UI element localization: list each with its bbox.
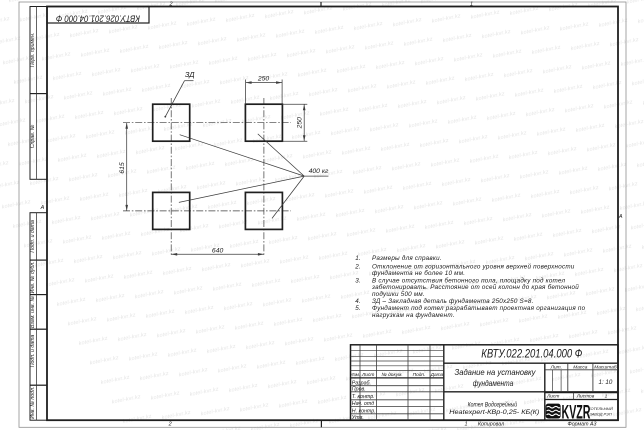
svg-text:1: 10: 1: 10 (599, 379, 613, 386)
svg-text:ЗАВОД РЭП: ЗАВОД РЭП (589, 412, 612, 417)
svg-text:Копировал: Копировал (478, 421, 504, 427)
svg-text:ЗД – Закладная деталь фундамен: ЗД – Закладная деталь фундамента 250х250… (372, 297, 534, 305)
svg-text:Пров.: Пров. (352, 387, 366, 393)
svg-text:Фундамент под котел разрабатыв: Фундамент под котел разрабатывает проект… (372, 304, 586, 312)
svg-text:забетонировать. Расстояние от: забетонировать. Расстояние от осей колон… (371, 283, 579, 291)
svg-text:А: А (40, 205, 45, 211)
svg-text:Формат А3: Формат А3 (568, 421, 597, 427)
svg-text:Утв.: Утв. (352, 415, 364, 421)
svg-text:КВТУ.022.201.04.000 Ф: КВТУ.022.201.04.000 Ф (481, 349, 582, 361)
svg-text:Нач. отд: Нач. отд (352, 401, 374, 407)
svg-text:1: 1 (464, 422, 467, 428)
svg-text:Инв. № подл.: Инв. № подл. (30, 387, 36, 419)
svg-text:Подп. и дата: Подп. и дата (30, 335, 36, 368)
svg-text:3.: 3. (355, 277, 361, 284)
svg-text:В случае отсутствия бетонного: В случае отсутствия бетонного пола, площ… (372, 276, 566, 284)
svg-text:Взам. инв. №: Взам. инв. № (30, 295, 36, 327)
svg-text:Размеры для справки.: Размеры для справки. (372, 254, 442, 262)
svg-text:А: А (618, 214, 623, 220)
svg-text:КОТЕЛЬНЫЙ: КОТЕЛЬНЫЙ (588, 406, 613, 411)
svg-text:Дата: Дата (430, 372, 444, 378)
svg-text:Heatexpert-КВр-0,25- КБ(К): Heatexpert-КВр-0,25- КБ(К) (449, 410, 539, 416)
svg-text:Масштаб: Масштаб (594, 365, 617, 371)
svg-text:250: 250 (297, 117, 304, 130)
svg-text:KVZR: KVZR (562, 402, 591, 423)
svg-text:615: 615 (119, 162, 126, 174)
svg-text:Лист: Лист (361, 372, 374, 378)
svg-text:подушки 500 мм.: подушки 500 мм. (372, 290, 425, 298)
svg-text:Задание на установку: Задание на установку (455, 367, 537, 377)
svg-text:Подп. и дата: Подп. и дата (30, 220, 36, 253)
svg-text:фундамента не более 10 мм.: фундамента не более 10 мм. (372, 269, 465, 277)
svg-text:4.: 4. (355, 298, 361, 305)
svg-text:Т. контр.: Т. контр. (352, 394, 375, 400)
svg-text:Масса: Масса (573, 365, 588, 371)
svg-text:250: 250 (257, 76, 270, 83)
svg-text:нагрузкам на фундамент.: нагрузкам на фундамент. (372, 311, 455, 319)
svg-text:1.: 1. (355, 255, 361, 262)
svg-text:КВТУ.026.201.04.000 Ф: КВТУ.026.201.04.000 Ф (56, 14, 140, 25)
svg-text:640: 640 (212, 247, 224, 254)
svg-text:Лит.: Лит. (550, 365, 562, 371)
svg-text:Изм.: Изм. (350, 372, 360, 378)
svg-text:ЗД: ЗД (185, 70, 195, 79)
svg-text:2: 2 (168, 2, 172, 8)
svg-text:Листов: Листов (576, 394, 595, 400)
svg-text:фундамента: фундамента (473, 378, 514, 388)
svg-text:Инв. № дубл.: Инв. № дубл. (30, 261, 36, 293)
svg-text:№ докум.: № докум. (382, 372, 403, 378)
svg-text:5.: 5. (355, 305, 361, 312)
svg-text:Лист: Лист (546, 394, 559, 400)
svg-text:Котел Водогрейный: Котел Водогрейный (468, 401, 518, 408)
svg-text:2.: 2. (354, 263, 361, 270)
svg-text:1: 1 (605, 394, 608, 400)
svg-text:Разраб.: Разраб. (352, 380, 371, 386)
svg-text:1: 1 (470, 2, 473, 8)
svg-text:400 кг: 400 кг (309, 168, 329, 175)
svg-text:Перв. примен.: Перв. примен. (30, 33, 36, 67)
svg-text:2: 2 (168, 422, 172, 428)
svg-text:Справ. №: Справ. № (30, 124, 36, 148)
svg-text:Отклонение от горизонтального: Отклонение от горизонтального уровня вер… (372, 262, 575, 270)
svg-text:Н. контр.: Н. контр. (352, 408, 376, 414)
svg-text:Подп.: Подп. (413, 372, 426, 378)
